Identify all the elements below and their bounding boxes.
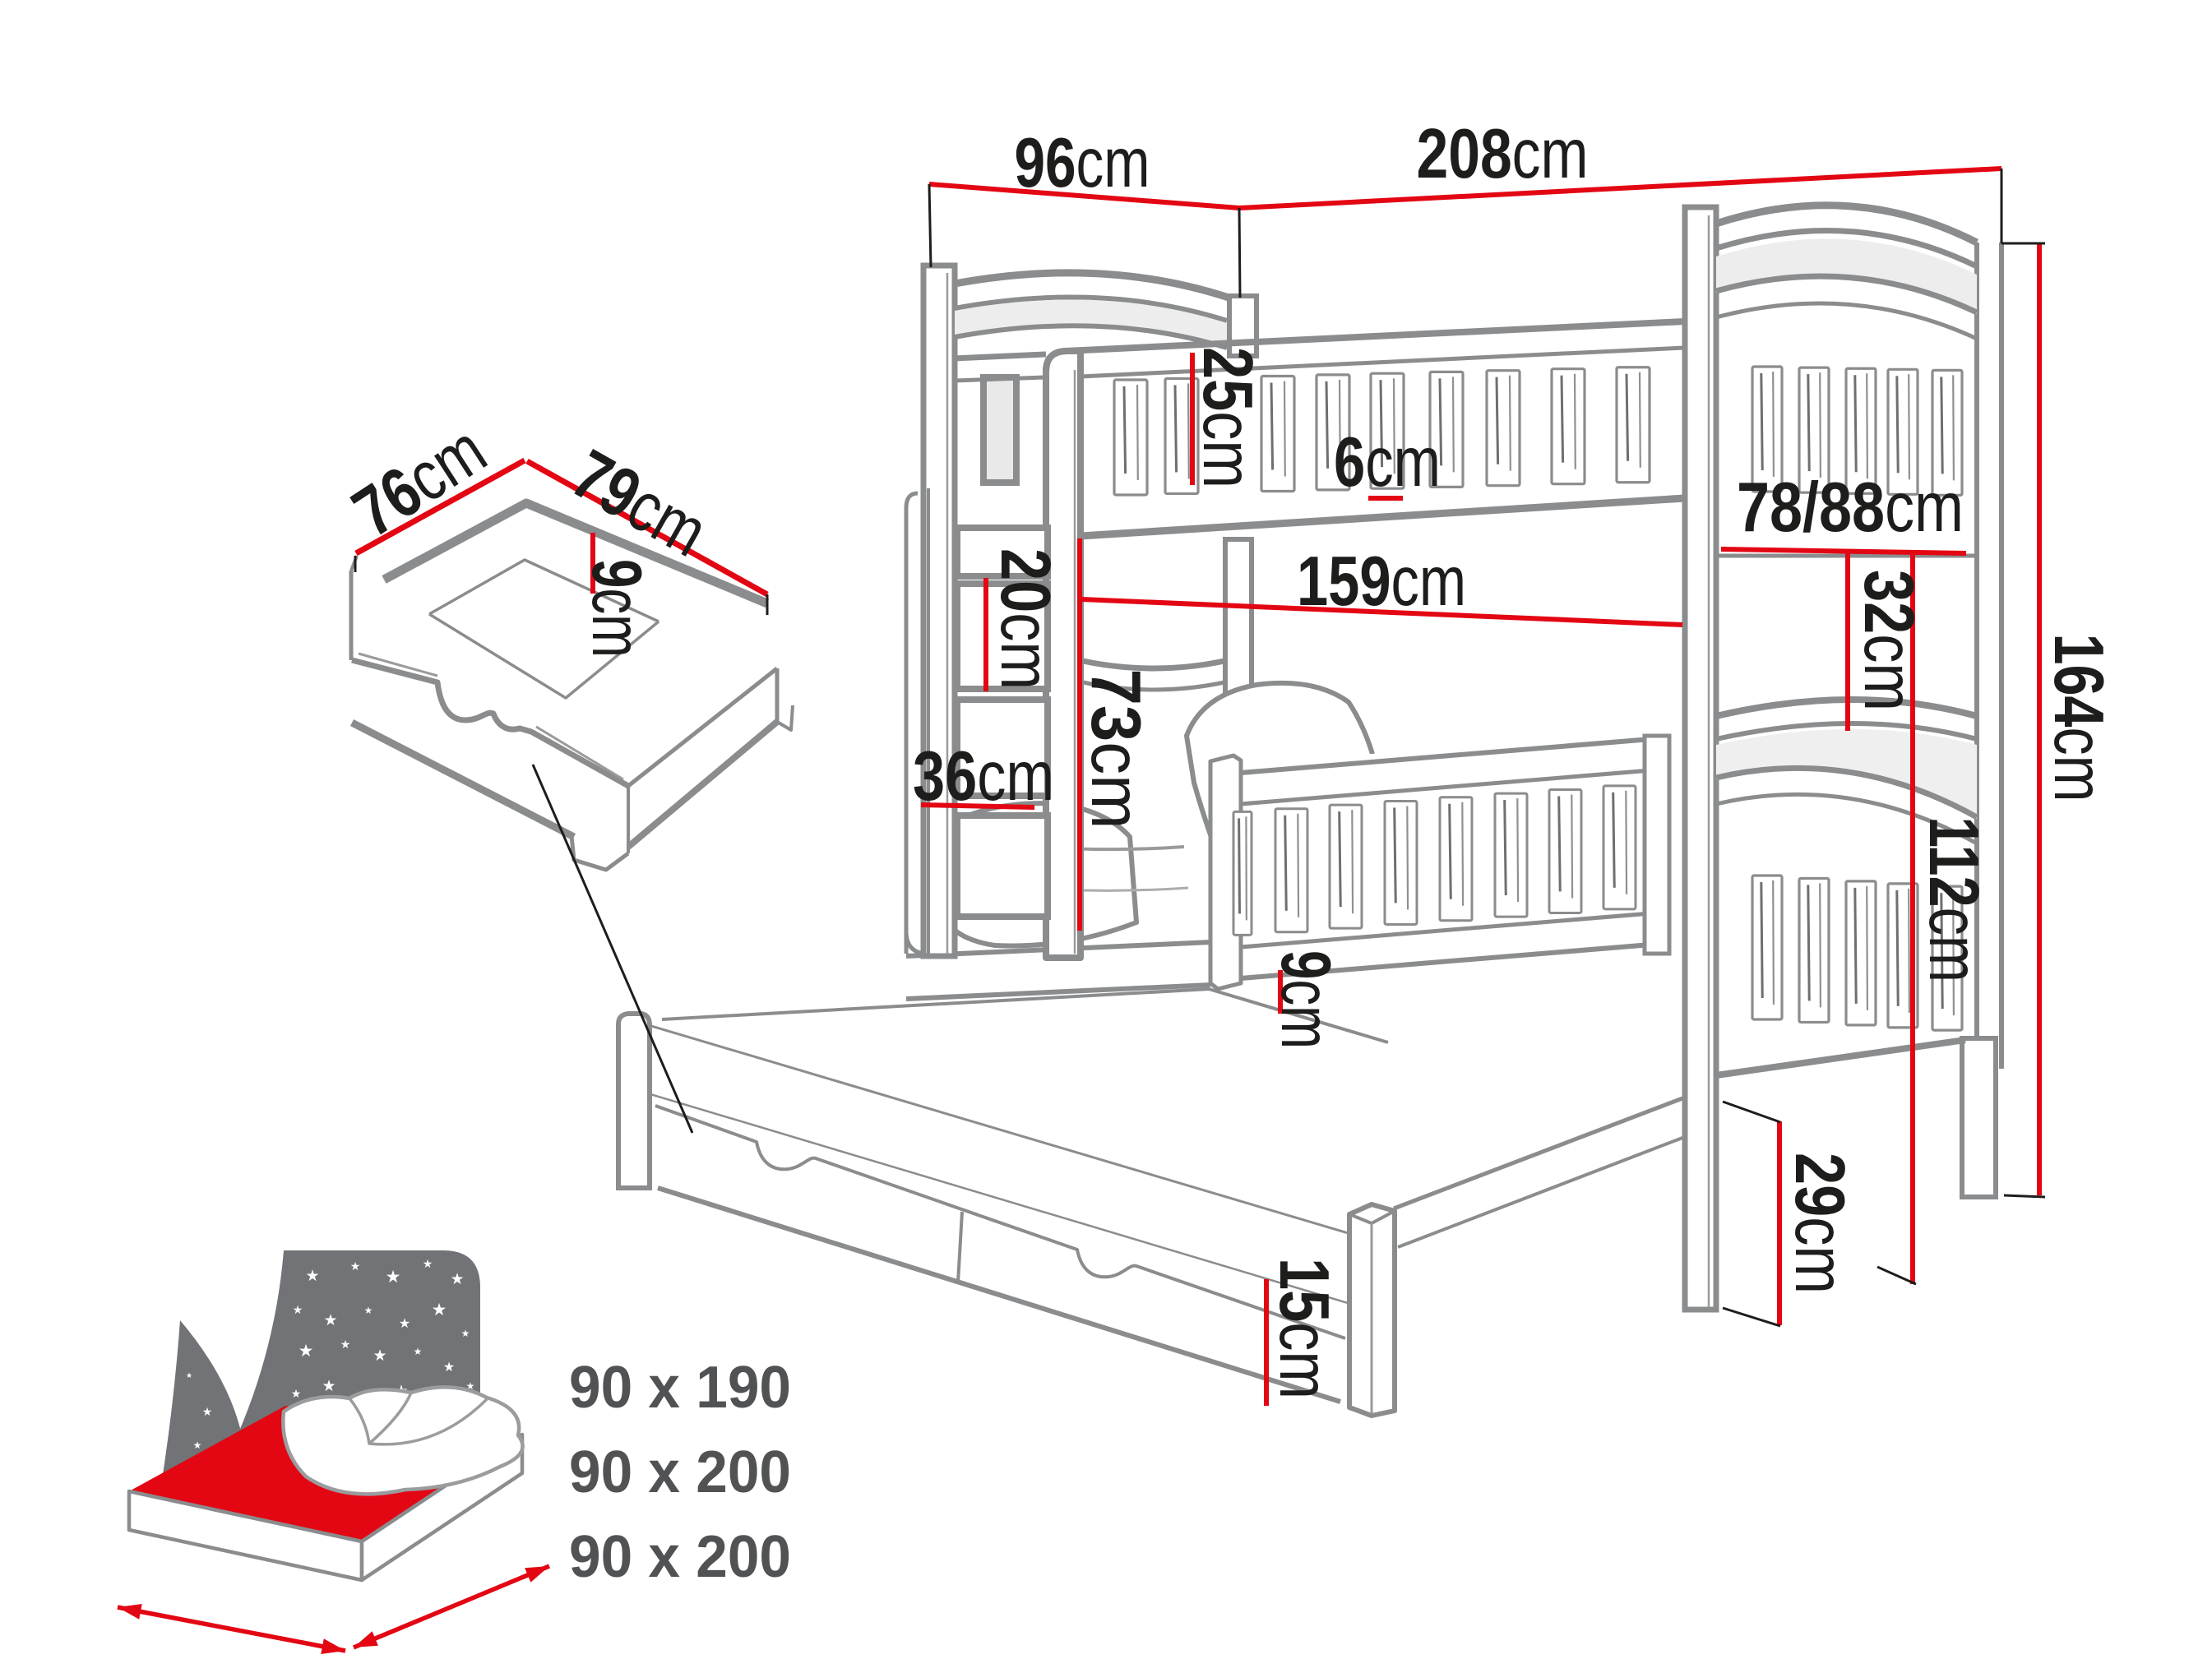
svg-text:★: ★	[461, 1328, 470, 1339]
svg-text:★: ★	[222, 1370, 233, 1384]
svg-text:112cm: 112cm	[1915, 816, 1993, 982]
svg-text:★: ★	[193, 1439, 202, 1451]
svg-text:6cm: 6cm	[1334, 423, 1441, 501]
svg-text:★: ★	[350, 1259, 361, 1273]
svg-text:73cm: 73cm	[1077, 669, 1155, 829]
svg-text:★: ★	[298, 1342, 314, 1361]
svg-text:★: ★	[386, 1268, 401, 1287]
svg-text:★: ★	[399, 1317, 410, 1331]
svg-text:15cm: 15cm	[1266, 1258, 1344, 1399]
svg-text:90 x 200: 90 x 200	[569, 1524, 791, 1590]
svg-text:★: ★	[450, 1271, 464, 1288]
svg-text:★: ★	[340, 1338, 351, 1351]
svg-text:★: ★	[291, 1387, 302, 1400]
svg-text:90 x 200: 90 x 200	[569, 1439, 791, 1505]
svg-text:25cm: 25cm	[1189, 347, 1267, 488]
svg-text:★: ★	[364, 1305, 373, 1316]
svg-text:164cm: 164cm	[2040, 634, 2118, 802]
svg-text:208cm: 208cm	[1417, 115, 1589, 193]
svg-text:9cm: 9cm	[578, 559, 656, 658]
svg-text:36cm: 36cm	[913, 737, 1054, 816]
svg-text:90 x 190: 90 x 190	[569, 1355, 791, 1421]
svg-text:★: ★	[432, 1301, 447, 1319]
svg-text:★: ★	[414, 1346, 423, 1357]
svg-text:★: ★	[202, 1405, 213, 1418]
svg-text:★: ★	[443, 1361, 455, 1375]
svg-text:29cm: 29cm	[1781, 1153, 1859, 1294]
svg-text:★: ★	[423, 1257, 433, 1270]
svg-text:★: ★	[243, 1339, 252, 1351]
svg-text:20cm: 20cm	[987, 548, 1065, 690]
svg-text:78/88cm: 78/88cm	[1737, 469, 1964, 547]
svg-text:★: ★	[229, 1342, 235, 1350]
svg-text:9cm: 9cm	[1267, 950, 1345, 1049]
svg-text:159cm: 159cm	[1297, 543, 1466, 621]
svg-text:★: ★	[305, 1268, 319, 1285]
svg-text:★: ★	[322, 1378, 336, 1395]
svg-text:★: ★	[186, 1371, 192, 1379]
svg-text:★: ★	[293, 1303, 303, 1316]
svg-text:32cm: 32cm	[1850, 570, 1928, 711]
svg-text:★: ★	[373, 1347, 386, 1365]
svg-text:96cm: 96cm	[1015, 124, 1150, 202]
svg-text:★: ★	[323, 1312, 337, 1329]
